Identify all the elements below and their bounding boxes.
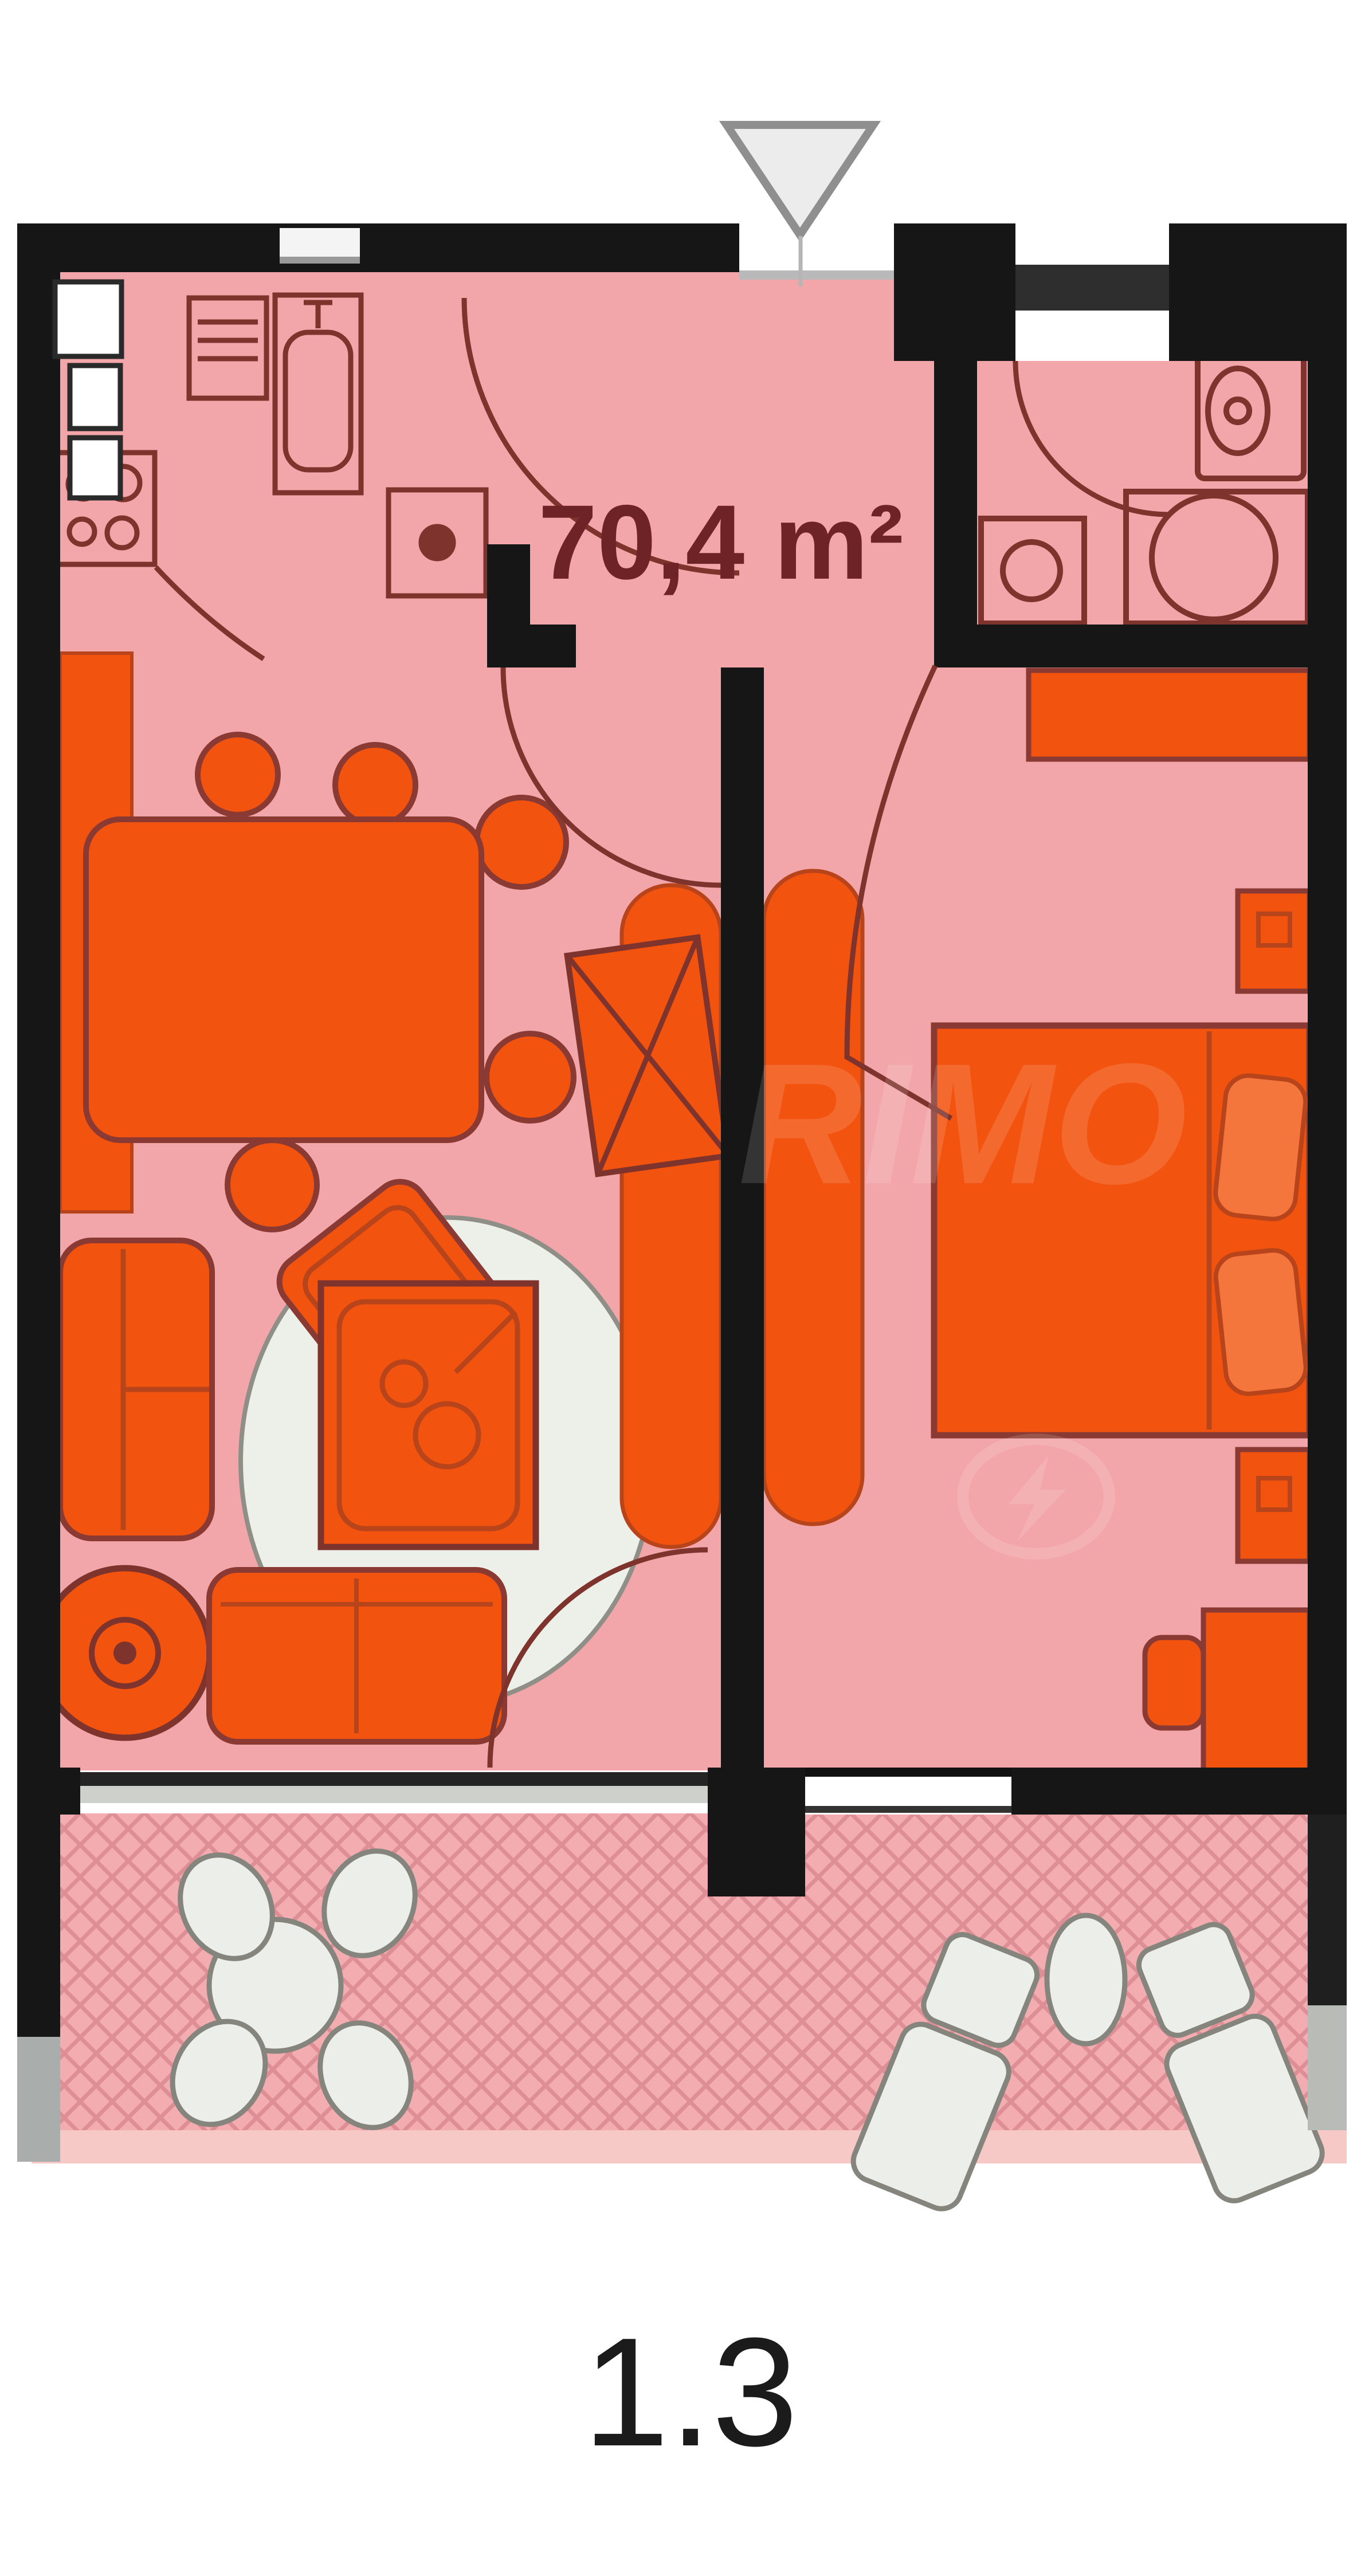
glass-door-line (80, 1772, 708, 1786)
tv-stand-icon (567, 937, 728, 1174)
unit-number: 1.3 (583, 2306, 798, 2479)
desk-icon (1203, 1610, 1309, 1772)
coffee-table-icon (321, 1283, 536, 1547)
floor-plan: RIMO 70,4 m² 1.3 (0, 0, 1361, 2576)
dining-chair-icon (335, 745, 415, 825)
pillow-icon (1213, 1073, 1308, 1221)
swivel-chair-icon (40, 1568, 210, 1738)
wall-hall-stub-foot (487, 625, 576, 667)
floor-plan-page: RIMO 70,4 m² 1.3 (0, 0, 1361, 2576)
wall-top-left (17, 223, 739, 272)
dining-chair-icon (487, 1034, 574, 1121)
desk-chair-icon (1145, 1638, 1203, 1728)
dining-chair-icon (477, 798, 566, 887)
cabinet-icon (70, 438, 120, 498)
wall-bottom-corner (17, 1768, 80, 1815)
wall-right-balcony-light (1308, 2005, 1347, 2130)
area-label: 70,4 m² (538, 484, 904, 602)
wall-bathroom-bottom (934, 625, 1347, 667)
dining-chair-icon (228, 1140, 317, 1230)
nightstand-icon (1238, 1450, 1309, 1561)
window-frame-line (805, 1768, 1011, 1777)
wall-vestibule (934, 361, 977, 625)
side-table-icon (1047, 1915, 1125, 2044)
table-dot (421, 527, 453, 559)
dining-table-icon (86, 819, 481, 1140)
watermark-text: RIMO (738, 1027, 1187, 1220)
balcony-edge-strip (32, 2130, 1347, 2163)
dining-chair-icon (198, 735, 278, 815)
dresser-icon (1029, 670, 1309, 759)
wall-right (1308, 223, 1347, 1813)
wall-left (17, 223, 60, 2037)
entrance-marker (727, 125, 873, 286)
pillow-icon (1214, 1248, 1308, 1396)
kitchen-window (280, 228, 360, 257)
bathroom-door-leaf (1015, 265, 1169, 311)
wall-pier (708, 1768, 805, 1896)
glass-door-sill (80, 1786, 708, 1803)
triangle-down-icon (727, 125, 873, 235)
fridge-icon (55, 282, 121, 356)
entrance-threshold (739, 270, 894, 280)
window-frame-line (805, 1806, 1011, 1813)
wall-left-balcony-light (17, 2037, 60, 2162)
wall-right-balcony (1308, 1813, 1347, 2005)
cabinet-icon (70, 366, 120, 429)
nightstand-icon (1238, 891, 1309, 991)
wall-bedroom-bottom (1011, 1768, 1347, 1815)
kitchen-window-sill (280, 257, 360, 264)
